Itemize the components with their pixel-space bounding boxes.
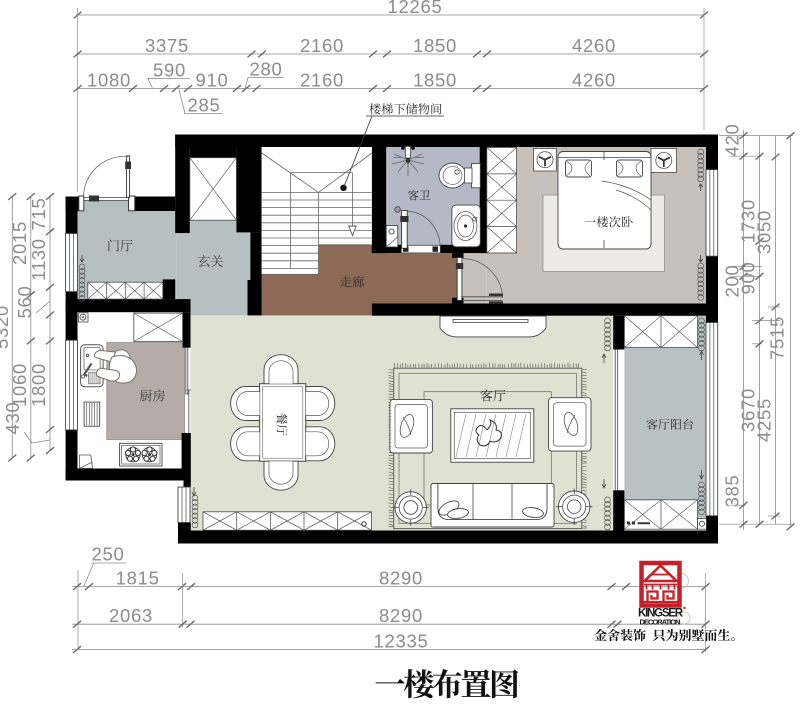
svg-text:560: 560: [14, 286, 35, 319]
svg-text:1800: 1800: [28, 363, 49, 407]
svg-text:12265: 12265: [388, 0, 443, 17]
svg-text:280: 280: [250, 59, 283, 80]
svg-text:4260: 4260: [572, 35, 616, 56]
svg-text:7515: 7515: [767, 316, 788, 360]
svg-text:385: 385: [722, 475, 743, 508]
svg-text:8290: 8290: [379, 605, 423, 626]
svg-text:12335: 12335: [374, 630, 429, 651]
svg-text:1060: 1060: [9, 363, 30, 407]
svg-text:2015: 2015: [9, 221, 30, 265]
svg-text:2063: 2063: [109, 605, 153, 626]
svg-text:4260: 4260: [572, 70, 616, 91]
svg-text:2160: 2160: [300, 70, 344, 91]
svg-text:285: 285: [188, 95, 221, 116]
svg-text:3375: 3375: [145, 35, 189, 56]
svg-text:1850: 1850: [413, 70, 457, 91]
svg-text:715: 715: [28, 198, 49, 231]
svg-text:420: 420: [722, 124, 743, 157]
svg-text:DECORATION: DECORATION: [640, 618, 681, 627]
svg-text:3050: 3050: [754, 210, 775, 254]
svg-text:1850: 1850: [413, 35, 457, 56]
svg-text:1815: 1815: [116, 568, 160, 589]
svg-text:1080: 1080: [87, 70, 131, 91]
svg-text:900: 900: [738, 262, 759, 295]
svg-text:590: 590: [153, 60, 186, 81]
svg-text:5320: 5320: [0, 305, 12, 349]
svg-text:8290: 8290: [379, 568, 423, 589]
svg-text:2160: 2160: [300, 35, 344, 56]
svg-text:430: 430: [2, 402, 23, 435]
svg-text:250: 250: [92, 544, 125, 565]
svg-text:4255: 4255: [754, 398, 775, 442]
svg-text:1130: 1130: [28, 238, 49, 281]
svg-text:910: 910: [196, 70, 229, 91]
